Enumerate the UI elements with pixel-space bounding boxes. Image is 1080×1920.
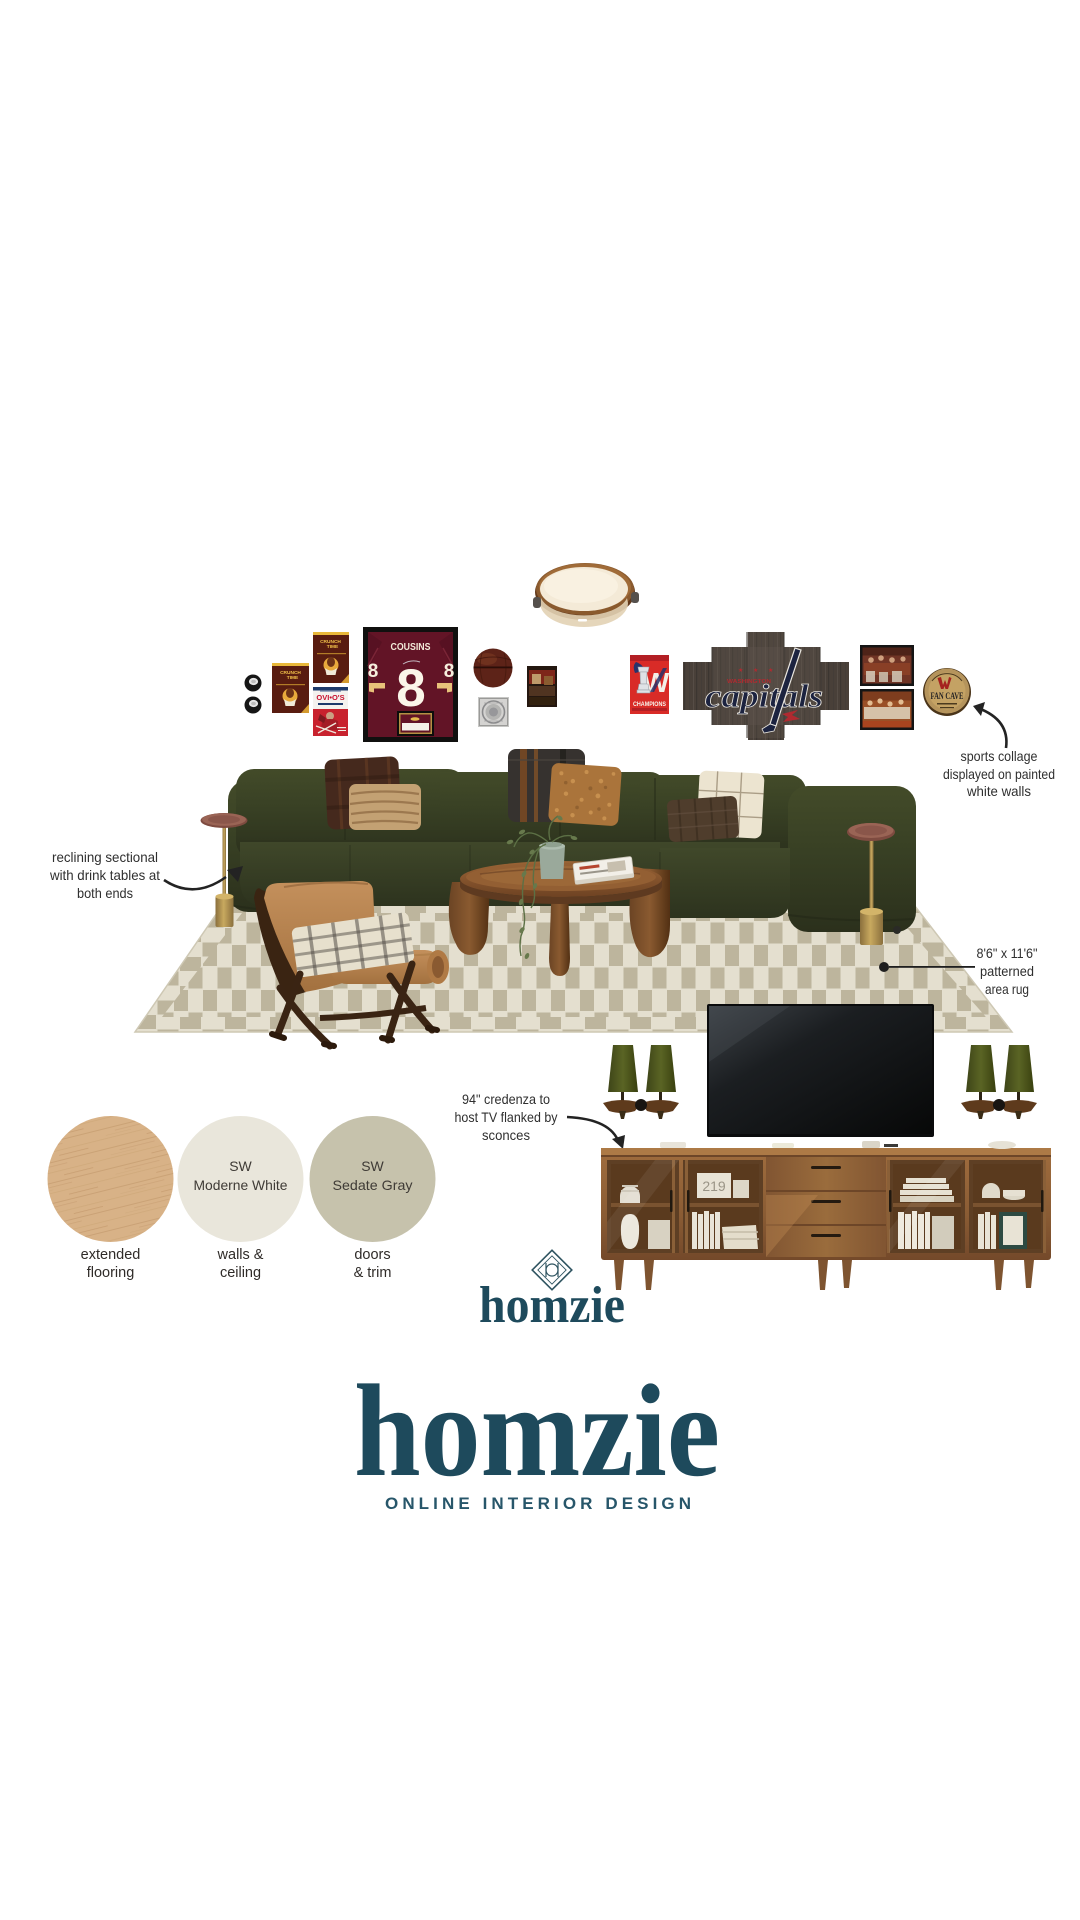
svg-text:doors: doors xyxy=(354,1247,390,1263)
svg-text:flooring: flooring xyxy=(87,1265,135,1281)
svg-text:8'6" x 11'6": 8'6" x 11'6" xyxy=(977,945,1038,961)
svg-text:8: 8 xyxy=(396,659,425,718)
svg-text:OVI•O'S: OVI•O'S xyxy=(316,693,344,702)
svg-text:area rug: area rug xyxy=(985,981,1029,997)
svg-text:94" credenza to: 94" credenza to xyxy=(462,1091,550,1107)
svg-text:FAN CAVE: FAN CAVE xyxy=(931,691,964,701)
svg-text:capitals: capitals xyxy=(705,679,823,715)
svg-text:TIME: TIME xyxy=(287,675,299,681)
svg-text:8: 8 xyxy=(368,661,379,682)
svg-text:★: ★ xyxy=(753,667,758,674)
svg-text:★: ★ xyxy=(768,667,773,674)
svg-text:extended: extended xyxy=(81,1247,141,1263)
svg-text:Sedate Gray: Sedate Gray xyxy=(333,1177,413,1193)
svg-text:sports collage: sports collage xyxy=(961,748,1038,764)
svg-text:both ends: both ends xyxy=(77,885,133,901)
svg-text:host TV flanked by: host TV flanked by xyxy=(455,1109,558,1125)
svg-text:COUSINS: COUSINS xyxy=(391,642,431,653)
svg-text:displayed on painted: displayed on painted xyxy=(943,766,1055,782)
svg-text:patterned: patterned xyxy=(980,963,1034,979)
svg-text:Moderne White: Moderne White xyxy=(194,1177,288,1193)
svg-text:★: ★ xyxy=(738,667,743,674)
svg-text:219: 219 xyxy=(702,1178,726,1194)
svg-text:ceiling: ceiling xyxy=(220,1265,261,1281)
svg-text:& trim: & trim xyxy=(354,1265,392,1281)
svg-text:8: 8 xyxy=(444,661,455,682)
svg-text:CHAMPIONS: CHAMPIONS xyxy=(633,701,667,708)
svg-text:homzie: homzie xyxy=(479,1277,625,1334)
svg-text:reclining sectional: reclining sectional xyxy=(52,849,158,865)
svg-text:TIME: TIME xyxy=(327,644,339,650)
svg-text:SW: SW xyxy=(229,1158,252,1174)
svg-text:sconces: sconces xyxy=(482,1127,530,1143)
svg-text:walls &: walls & xyxy=(217,1247,264,1263)
svg-text:with drink tables at: with drink tables at xyxy=(49,867,160,883)
svg-text:SW: SW xyxy=(361,1158,384,1174)
svg-text:white walls: white walls xyxy=(966,783,1031,799)
svg-text:homzie: homzie xyxy=(354,1357,720,1504)
